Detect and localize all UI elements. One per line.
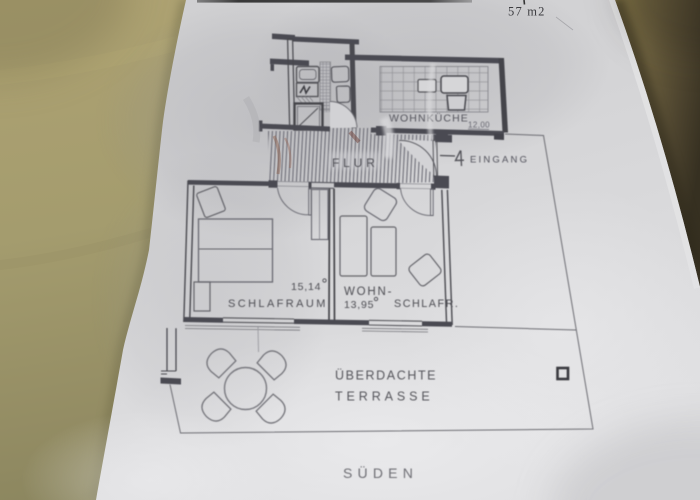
svg-text:57 m2: 57 m2 xyxy=(508,5,546,19)
svg-text:ÜBERDACHTE: ÜBERDACHTE xyxy=(335,369,437,383)
svg-text:TERRASSE: TERRASSE xyxy=(335,390,434,404)
svg-text:SÜDEN: SÜDEN xyxy=(343,464,418,481)
svg-text:12,00: 12,00 xyxy=(468,121,490,130)
svg-text:13,95: 13,95 xyxy=(344,299,374,311)
svg-text:EINGANG: EINGANG xyxy=(470,155,529,166)
svg-text:SCHLAFR.: SCHLAFR. xyxy=(394,298,459,310)
svg-text:FLUR: FLUR xyxy=(332,156,379,170)
svg-text:WOHN-: WOHN- xyxy=(344,286,393,298)
svg-text:15,14: 15,14 xyxy=(291,281,321,293)
svg-text:SCHLAFRAUM: SCHLAFRAUM xyxy=(228,298,328,310)
